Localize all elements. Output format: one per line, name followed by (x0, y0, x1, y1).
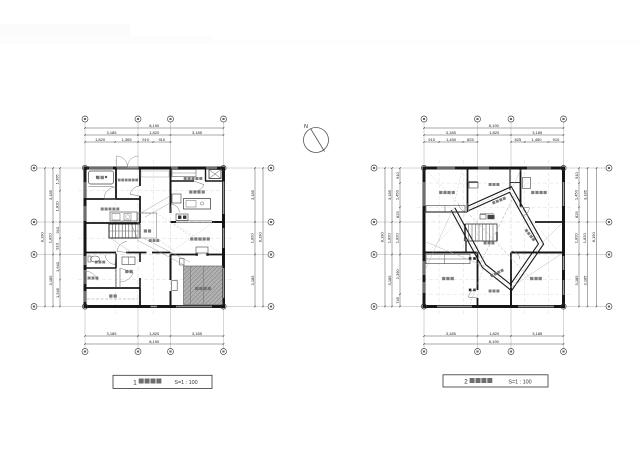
svg-text:1,820: 1,820 (387, 232, 392, 243)
svg-text:1,820: 1,820 (55, 201, 60, 212)
svg-text:1,820: 1,820 (48, 232, 53, 243)
svg-text:3,185: 3,185 (192, 130, 203, 135)
svg-text:3,185: 3,185 (574, 275, 579, 286)
svg-text:1,450: 1,450 (531, 137, 542, 142)
svg-text:8,190: 8,190 (258, 231, 263, 242)
svg-text:1,365: 1,365 (122, 137, 133, 142)
svg-text:1,820: 1,820 (489, 331, 500, 336)
svg-text:1,820: 1,820 (582, 232, 587, 243)
svg-text:8,190: 8,190 (380, 231, 385, 242)
svg-text:8,190: 8,190 (489, 123, 500, 128)
svg-text:N: N (304, 124, 308, 130)
svg-text:3,185: 3,185 (106, 331, 117, 336)
svg-text:3,185: 3,185 (106, 130, 117, 135)
svg-text:825: 825 (574, 210, 579, 217)
svg-text:910: 910 (428, 137, 435, 142)
svg-text:3,185: 3,185 (48, 189, 53, 200)
svg-text:1,545: 1,545 (55, 287, 60, 298)
svg-text:1,450: 1,450 (446, 137, 457, 142)
svg-text:3,185: 3,185 (387, 275, 392, 286)
svg-text:1,820: 1,820 (395, 232, 400, 243)
svg-text:2,390: 2,390 (395, 269, 400, 280)
svg-text:1,820: 1,820 (149, 331, 160, 336)
svg-text:1,820: 1,820 (149, 130, 160, 135)
svg-text:3,185: 3,185 (250, 189, 255, 200)
svg-text:3,185: 3,185 (387, 189, 392, 200)
svg-text:910: 910 (55, 242, 60, 249)
svg-text:1,450: 1,450 (395, 189, 400, 200)
svg-text:910: 910 (142, 137, 149, 142)
svg-text:3,185: 3,185 (48, 275, 53, 286)
svg-text:S=1 : 100: S=1 : 100 (508, 379, 531, 385)
svg-text:3,185: 3,185 (532, 331, 543, 336)
svg-text:1,365: 1,365 (55, 174, 60, 185)
svg-text:1,450: 1,450 (574, 189, 579, 200)
svg-text:3,185: 3,185 (582, 189, 587, 200)
svg-text:1,820: 1,820 (574, 232, 579, 243)
svg-text:910: 910 (158, 137, 165, 142)
svg-text:1,820: 1,820 (250, 232, 255, 243)
svg-text:3,185: 3,185 (582, 275, 587, 286)
svg-text:825: 825 (395, 210, 400, 217)
svg-text:1,640: 1,640 (55, 261, 60, 272)
svg-text:825: 825 (515, 137, 522, 142)
svg-text:745: 745 (395, 296, 400, 303)
svg-text:910: 910 (574, 171, 579, 178)
svg-text:8,190: 8,190 (591, 231, 596, 242)
svg-text:1,820: 1,820 (489, 130, 500, 135)
svg-text:3,185: 3,185 (446, 331, 457, 336)
svg-text:1: 1 (133, 379, 137, 386)
svg-text:8,190: 8,190 (149, 339, 160, 344)
svg-text:825: 825 (467, 137, 474, 142)
svg-text:910: 910 (395, 171, 400, 178)
svg-text:3,185: 3,185 (250, 275, 255, 286)
svg-text:910: 910 (553, 137, 560, 142)
svg-text:8,190: 8,190 (40, 231, 45, 242)
svg-text:8,190: 8,190 (489, 339, 500, 344)
svg-text:3,185: 3,185 (446, 130, 457, 135)
svg-text:2: 2 (464, 379, 468, 386)
svg-text:910: 910 (55, 226, 60, 233)
svg-text:S=1 : 100: S=1 : 100 (174, 380, 197, 386)
svg-text:3,185: 3,185 (192, 331, 203, 336)
svg-text:1,820: 1,820 (95, 137, 106, 142)
svg-text:8,190: 8,190 (149, 123, 160, 128)
svg-text:3,185: 3,185 (532, 130, 543, 135)
